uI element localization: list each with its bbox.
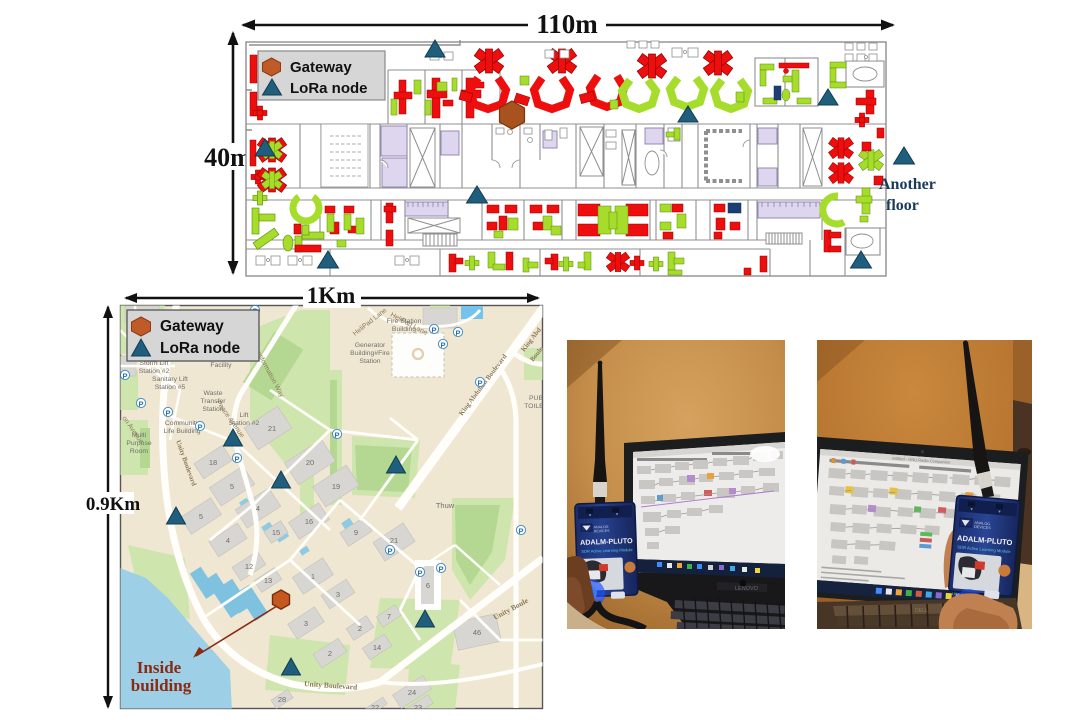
svg-text:▼: ▼	[588, 512, 592, 517]
svg-text:▼: ▼	[969, 506, 973, 511]
svg-text:5: 5	[199, 512, 203, 521]
svg-text:Gateway: Gateway	[160, 318, 224, 335]
svg-text:1Km: 1Km	[307, 283, 356, 308]
svg-text:22: 22	[371, 703, 379, 712]
svg-text:23: 23	[414, 703, 422, 712]
svg-text:Gateway: Gateway	[290, 59, 352, 76]
svg-text:2: 2	[358, 624, 362, 633]
svg-text:7: 7	[387, 612, 391, 621]
svg-text:Inside: Inside	[137, 658, 182, 677]
svg-text:Transfer: Transfer	[200, 398, 226, 405]
svg-text:Building#Fire: Building#Fire	[350, 350, 390, 357]
svg-text:16: 16	[305, 517, 313, 526]
svg-text:Another: Another	[879, 176, 936, 193]
svg-text:20: 20	[306, 458, 314, 467]
svg-text:28: 28	[278, 695, 286, 704]
svg-text:Station #2: Station #2	[139, 368, 170, 375]
svg-text:TOILET: TOILET	[524, 403, 548, 410]
svg-text:Life Building: Life Building	[163, 428, 200, 435]
svg-text:6: 6	[426, 581, 430, 590]
svg-text:40m: 40m	[204, 143, 252, 172]
svg-text:15: 15	[272, 528, 280, 537]
svg-text:floor: floor	[886, 197, 919, 214]
svg-text:0.9Km: 0.9Km	[86, 494, 141, 515]
svg-text:3: 3	[336, 590, 340, 599]
svg-text:Community: Community	[165, 420, 200, 427]
svg-text:Building: Building	[392, 326, 416, 333]
svg-text:12: 12	[245, 562, 253, 571]
svg-text:19: 19	[332, 482, 340, 491]
svg-text:18: 18	[209, 458, 217, 467]
svg-text:LENOVO: LENOVO	[735, 586, 759, 592]
svg-text:4: 4	[226, 536, 230, 545]
svg-text:DEVICES: DEVICES	[594, 529, 611, 534]
svg-text:Generator: Generator	[355, 342, 386, 349]
svg-text:Facility: Facility	[210, 362, 232, 369]
svg-text:Station: Station	[202, 406, 223, 413]
svg-text:21: 21	[390, 536, 398, 545]
svg-text:Room: Room	[130, 448, 148, 455]
svg-text:LoRa node: LoRa node	[160, 340, 240, 357]
svg-text:14: 14	[373, 643, 381, 652]
svg-text:Station: Station	[359, 358, 380, 365]
svg-text:PUB: PUB	[529, 395, 543, 402]
svg-text:Station #5: Station #5	[155, 384, 186, 391]
svg-text:1: 1	[311, 572, 315, 581]
svg-text:Fire Station: Fire Station	[387, 318, 422, 325]
svg-text:24: 24	[408, 688, 416, 697]
svg-text:ADALM-PLUTO: ADALM-PLUTO	[580, 536, 633, 547]
svg-text:5: 5	[230, 482, 234, 491]
svg-text:Thuw: Thuw	[436, 501, 455, 510]
svg-text:Station #2: Station #2	[229, 420, 260, 427]
svg-text:21: 21	[268, 424, 276, 433]
svg-text:▼: ▼	[997, 509, 1001, 514]
svg-text:Sanitary Lift: Sanitary Lift	[152, 376, 188, 383]
svg-text:4: 4	[256, 504, 260, 513]
svg-text:46: 46	[473, 628, 481, 637]
svg-text:Multi: Multi	[132, 432, 147, 439]
svg-text:9: 9	[354, 528, 358, 537]
svg-text:▼: ▼	[615, 512, 619, 517]
svg-text:110m: 110m	[536, 9, 598, 39]
svg-text:Purpose: Purpose	[126, 440, 152, 447]
svg-text:DELL: DELL	[915, 608, 928, 614]
svg-text:Lift: Lift	[239, 412, 248, 419]
svg-text:LoRa node: LoRa node	[290, 80, 368, 97]
svg-text:13: 13	[264, 576, 272, 585]
svg-text:3: 3	[304, 619, 308, 628]
svg-text:2: 2	[328, 649, 332, 658]
svg-text:building: building	[131, 676, 192, 695]
svg-text:Waste: Waste	[203, 390, 222, 397]
